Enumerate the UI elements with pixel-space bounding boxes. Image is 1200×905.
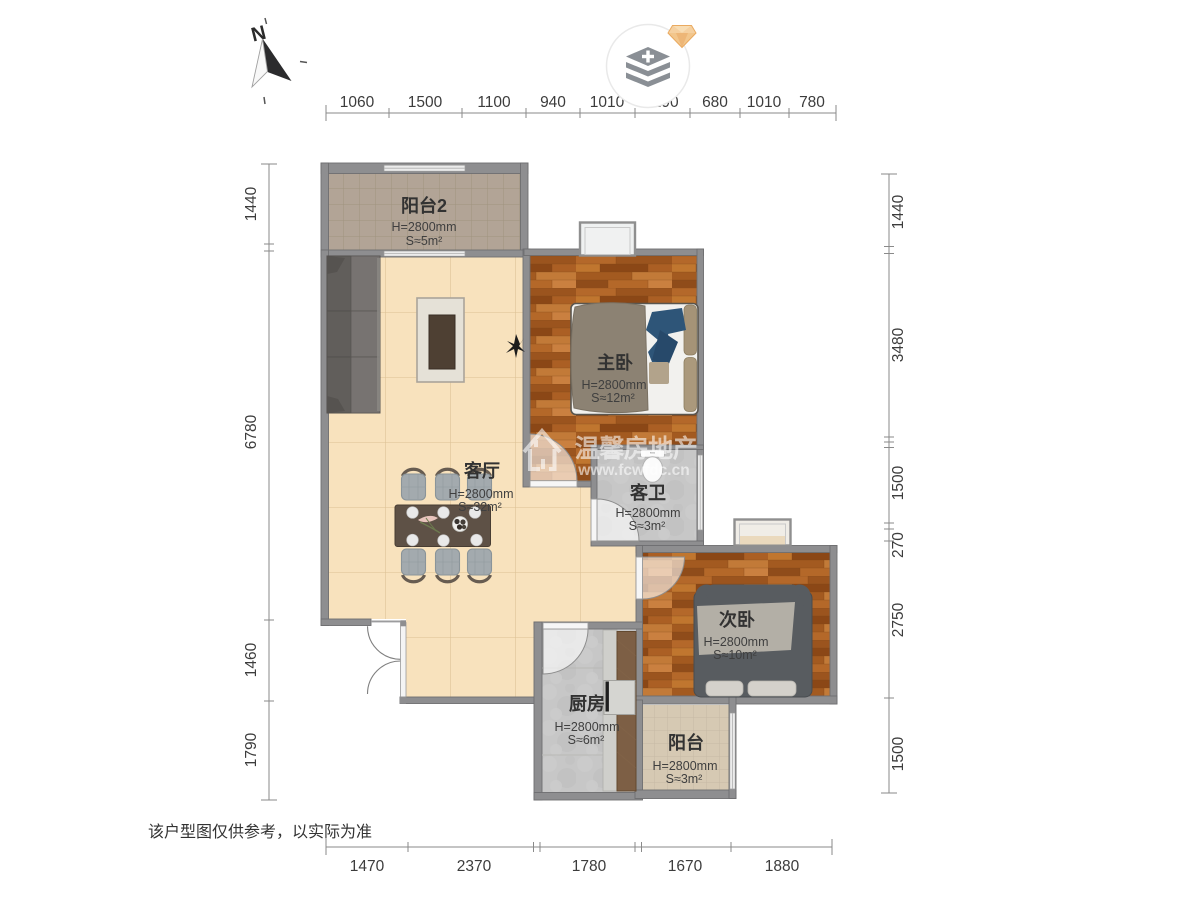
svg-text:1670: 1670 [668, 858, 703, 875]
svg-text:1440: 1440 [243, 186, 260, 221]
svg-text:S≈6m²: S≈6m² [568, 733, 605, 747]
svg-text:该户型图仅供参考，以实际为准: 该户型图仅供参考，以实际为准 [148, 823, 372, 841]
svg-text:H=2800mm: H=2800mm [582, 378, 647, 392]
svg-text:次卧: 次卧 [719, 609, 755, 630]
svg-text:1470: 1470 [350, 858, 385, 875]
svg-text:S≈10m²: S≈10m² [713, 648, 757, 662]
svg-text:S≈12m²: S≈12m² [591, 391, 635, 405]
svg-text:H=2800mm: H=2800mm [555, 720, 620, 734]
svg-text:温馨房地产: 温馨房地产 [575, 434, 698, 463]
svg-text:S≈3m²: S≈3m² [666, 772, 703, 786]
svg-text:940: 940 [540, 94, 566, 111]
svg-text:S≈32m²: S≈32m² [458, 500, 502, 514]
svg-text:1500: 1500 [408, 94, 443, 111]
svg-text:1780: 1780 [572, 858, 607, 875]
svg-text:780: 780 [799, 94, 825, 111]
svg-text:1500: 1500 [890, 465, 907, 500]
svg-text:2750: 2750 [890, 602, 907, 637]
svg-text:H=2800mm: H=2800mm [616, 506, 681, 520]
svg-text:680: 680 [702, 94, 728, 111]
svg-text:1880: 1880 [765, 858, 800, 875]
svg-text:S≈3m²: S≈3m² [629, 519, 666, 533]
svg-text:阳台: 阳台 [668, 732, 704, 753]
svg-text:1440: 1440 [890, 194, 907, 229]
svg-text:客卫: 客卫 [630, 482, 666, 503]
svg-text:1500: 1500 [890, 736, 907, 771]
svg-text:H=2800mm: H=2800mm [704, 635, 769, 649]
svg-text:H=2800mm: H=2800mm [449, 487, 514, 501]
svg-text:主卧: 主卧 [597, 352, 633, 373]
svg-text:3480: 3480 [890, 327, 907, 362]
svg-text:1460: 1460 [243, 642, 260, 677]
svg-text:www.fcwfdc.cn: www.fcwfdc.cn [577, 462, 689, 479]
svg-text:1010: 1010 [747, 94, 782, 111]
svg-text:S≈5m²: S≈5m² [406, 234, 443, 248]
svg-text:1100: 1100 [477, 94, 511, 111]
svg-text:270: 270 [890, 532, 907, 558]
svg-text:2370: 2370 [457, 858, 492, 875]
svg-text:厨房: 厨房 [569, 693, 605, 714]
svg-text:客厅: 客厅 [464, 460, 500, 481]
svg-text:H=2800mm: H=2800mm [392, 220, 457, 234]
svg-text:6780: 6780 [243, 414, 260, 449]
svg-text:阳台2: 阳台2 [401, 195, 447, 216]
svg-text:H=2800mm: H=2800mm [653, 759, 718, 773]
svg-text:1060: 1060 [340, 94, 375, 111]
svg-text:1790: 1790 [243, 732, 260, 767]
